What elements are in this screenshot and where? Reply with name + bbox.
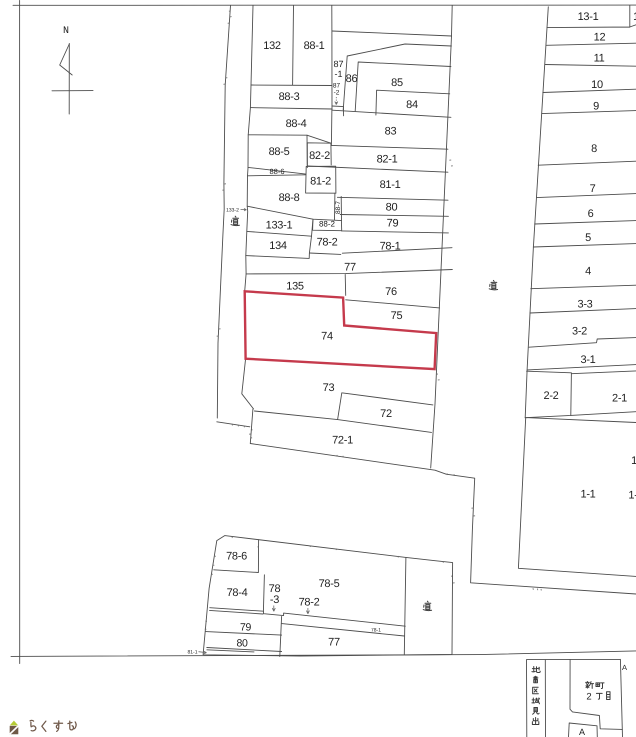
svg-text:4: 4 (585, 266, 591, 278)
svg-text:1-1: 1-1 (581, 489, 596, 501)
svg-text:72: 72 (380, 408, 392, 420)
svg-text:88-7: 88-7 (335, 201, 342, 214)
svg-text:3-1: 3-1 (581, 354, 596, 366)
svg-text:-3: -3 (270, 594, 279, 606)
svg-text:13-1: 13-1 (578, 11, 599, 23)
svg-text:87: 87 (333, 83, 341, 90)
svg-text:133-1: 133-1 (266, 220, 293, 232)
svg-text:7: 7 (590, 183, 596, 195)
svg-text:79: 79 (387, 218, 399, 230)
svg-text:A: A (579, 727, 585, 737)
svg-text:72-1: 72-1 (332, 435, 353, 447)
svg-text:78-1: 78-1 (380, 241, 401, 253)
svg-text:80: 80 (236, 638, 248, 650)
svg-text:78-4: 78-4 (227, 587, 248, 599)
svg-text:78-5: 78-5 (319, 578, 340, 590)
svg-text:8: 8 (591, 143, 597, 155)
svg-text:88-5: 88-5 (269, 146, 290, 158)
svg-text:83: 83 (385, 126, 397, 138)
svg-text:3-3: 3-3 (578, 299, 593, 311)
svg-text:74: 74 (321, 331, 333, 343)
svg-text:12: 12 (594, 32, 606, 44)
svg-text:78-6: 78-6 (226, 551, 247, 563)
svg-text:2: 2 (586, 692, 591, 703)
svg-text:9: 9 (593, 101, 599, 113)
svg-text:-2: -2 (334, 90, 340, 97)
svg-text:11: 11 (594, 53, 605, 65)
svg-text:88-3: 88-3 (279, 91, 300, 103)
svg-text:134: 134 (269, 240, 287, 252)
svg-text:88-6: 88-6 (269, 167, 284, 176)
svg-text:78-2: 78-2 (299, 597, 320, 609)
svg-text:73: 73 (323, 382, 335, 394)
svg-text:2-1: 2-1 (612, 393, 627, 405)
svg-text:135: 135 (286, 281, 304, 293)
svg-text:2-2: 2-2 (544, 390, 559, 402)
svg-text:-1: -1 (334, 69, 342, 79)
svg-text:80: 80 (386, 202, 398, 214)
svg-text:87: 87 (333, 59, 343, 69)
svg-text:78-1: 78-1 (371, 628, 381, 634)
svg-text:1: 1 (631, 455, 636, 467)
svg-text:84: 84 (406, 99, 418, 111)
svg-text:81-1: 81-1 (380, 179, 401, 191)
svg-text:77: 77 (328, 637, 340, 649)
svg-text:N: N (63, 26, 69, 37)
svg-text:81-1: 81-1 (187, 649, 197, 655)
svg-text:A: A (622, 663, 627, 672)
svg-text:6: 6 (588, 208, 594, 220)
svg-text:88-2: 88-2 (319, 220, 336, 229)
svg-text:3-2: 3-2 (572, 326, 587, 338)
svg-text:10: 10 (591, 79, 603, 91)
svg-text:88-4: 88-4 (286, 118, 307, 130)
svg-text:1-: 1- (628, 490, 636, 502)
svg-text:133-2: 133-2 (226, 207, 239, 213)
svg-text:77: 77 (344, 262, 356, 274)
svg-text:88-1: 88-1 (304, 40, 325, 52)
svg-text:86: 86 (346, 73, 358, 85)
svg-text:5: 5 (585, 232, 591, 244)
svg-text:82-2: 82-2 (309, 150, 330, 162)
svg-text:81-2: 81-2 (310, 176, 331, 188)
svg-text:85: 85 (391, 77, 403, 89)
svg-text:75: 75 (391, 310, 403, 322)
svg-text:132: 132 (263, 40, 281, 52)
svg-text:88-8: 88-8 (279, 192, 300, 204)
svg-text:82-1: 82-1 (377, 154, 398, 166)
svg-text:76: 76 (385, 286, 397, 298)
svg-text:79: 79 (240, 622, 252, 634)
svg-text:78-2: 78-2 (317, 237, 338, 249)
